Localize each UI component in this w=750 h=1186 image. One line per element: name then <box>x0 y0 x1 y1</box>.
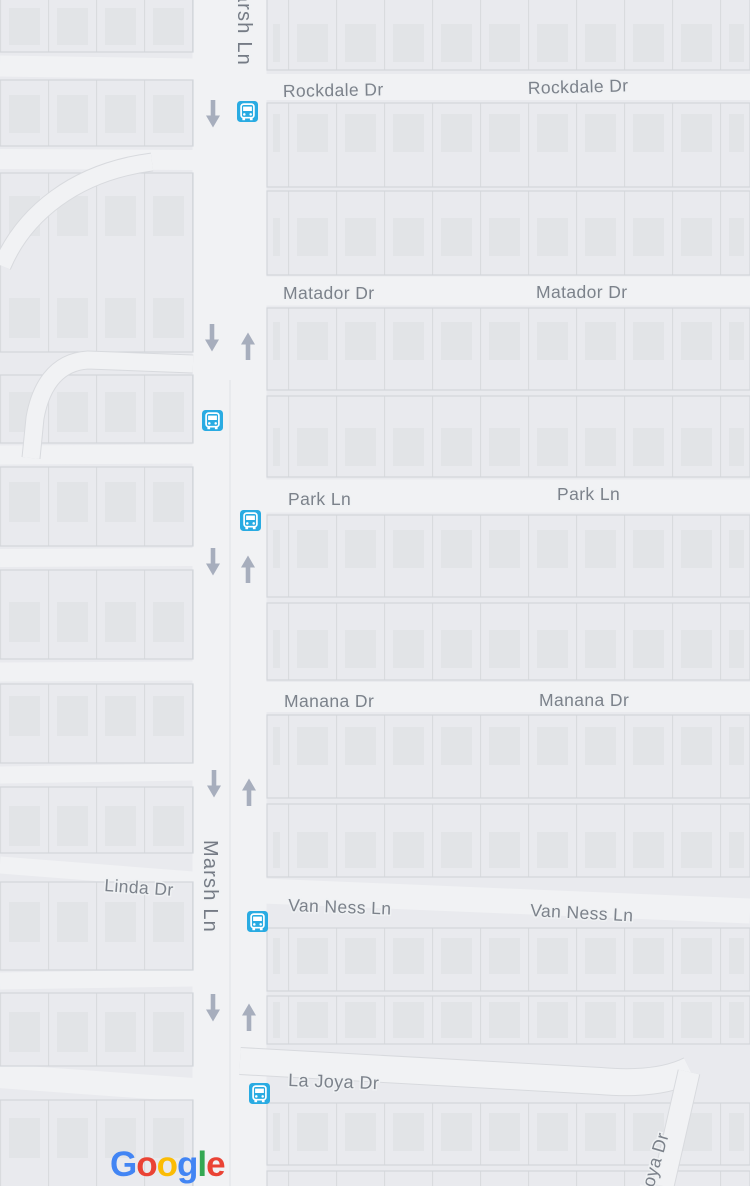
street-label-rockdale-left: Rockdale Dr <box>283 79 384 101</box>
bus-stop-icon[interactable] <box>249 1083 270 1104</box>
street-label-manana-right: Manana Dr <box>539 690 629 710</box>
google-logo[interactable]: Google <box>110 1145 225 1184</box>
bus-stop-icon[interactable] <box>240 510 261 531</box>
street-label-matador-right: Matador Dr <box>536 282 628 302</box>
map-canvas[interactable]: Rockdale Dr Rockdale Dr Matador Dr Matad… <box>0 0 750 1186</box>
street-label-rockdale-right: Rockdale Dr <box>528 75 629 98</box>
street-label-park-right: Park Ln <box>557 484 620 504</box>
street-label-marsh-top: Marsh Ln <box>233 0 255 66</box>
map-svg[interactable]: Rockdale Dr Rockdale Dr Matador Dr Matad… <box>0 0 750 1186</box>
street-label-marsh-mid: Marsh Ln <box>199 840 221 933</box>
bus-stop-icon[interactable] <box>247 911 268 932</box>
street-label-park-left: Park Ln <box>288 489 351 509</box>
street-label-manana-left: Manana Dr <box>284 691 374 711</box>
bus-stop-icon[interactable] <box>202 410 223 431</box>
street-label-la-joya: La Joya Dr <box>288 1070 380 1093</box>
street-label-matador-left: Matador Dr <box>283 283 375 303</box>
bus-stop-icon[interactable] <box>237 101 258 122</box>
street-label-van-ness-left: Van Ness Ln <box>288 895 392 919</box>
